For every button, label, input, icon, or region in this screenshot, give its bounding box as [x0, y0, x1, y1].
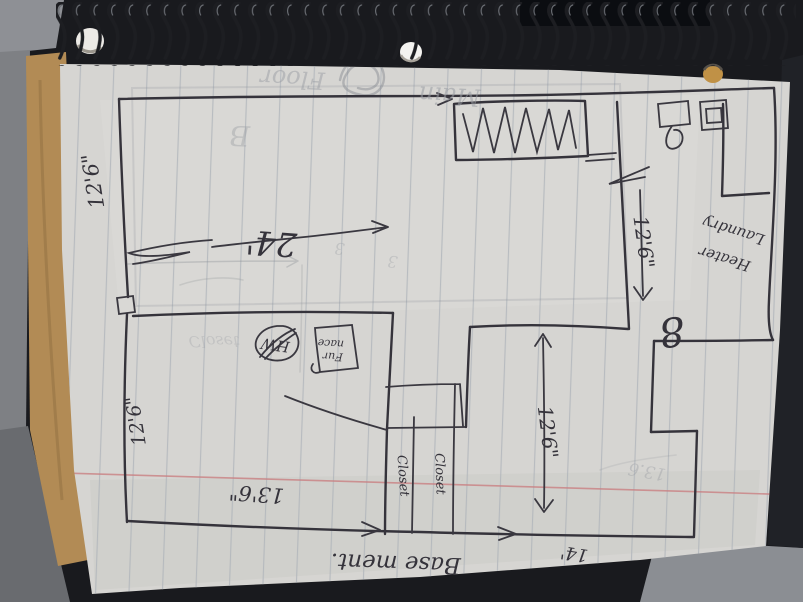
ghost-text-closet-bleed: Closet	[188, 332, 240, 351]
spiral-binding	[56, 2, 796, 66]
notebook-photo-canvas: 12'6" 24' 12'6" 12'6" 13'6" 12'6" 14' 8 …	[0, 0, 803, 602]
label-furnace-line1: Fur	[322, 349, 344, 363]
ghost-text-main: Main	[418, 80, 482, 111]
notebook-photo: 12'6" 24' 12'6" 12'6" 13'6" 12'6" 14' 8 …	[0, 0, 803, 602]
notebook-page: 12'6" 24' 12'6" 12'6" 13'6" 12'6" 14' 8 …	[56, 57, 798, 600]
ghost-text-b: B	[229, 119, 252, 153]
dim-label-24ft: 24'	[244, 222, 299, 265]
wall-right-jog	[651, 431, 697, 432]
ghost-text-three-a: 3	[334, 239, 346, 259]
ghost-text-floor: Floor	[258, 63, 327, 94]
spiral-wire-loops	[56, 2, 796, 66]
label-closet-right: Closet	[431, 453, 447, 496]
label-closet-left: Closet	[394, 455, 412, 498]
dim-label-13ft6: 13'6"	[228, 480, 285, 508]
label-furnace-line2: nace	[317, 336, 344, 350]
ghost-text-three-b: 3	[387, 252, 399, 272]
desk-left-strip	[0, 50, 30, 438]
dim-label-14ft: 14'	[559, 541, 590, 566]
desk-top-left	[0, 0, 64, 54]
label-basement: Base ment.	[330, 548, 462, 579]
